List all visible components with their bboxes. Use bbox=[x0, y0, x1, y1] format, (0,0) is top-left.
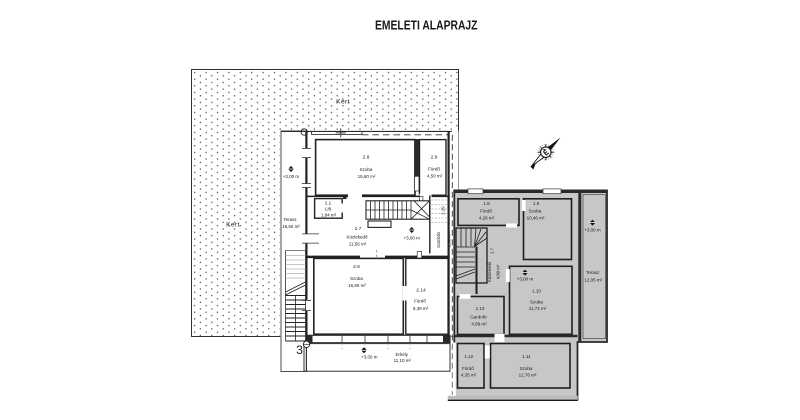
svg-text:Gardrób: Gardrób bbox=[470, 315, 487, 320]
svg-text:+3,00 m: +3,00 m bbox=[361, 355, 378, 360]
svg-text:2.1: 2.1 bbox=[325, 201, 332, 206]
svg-text:Szoba: Szoba bbox=[360, 167, 373, 172]
svg-text:1.8: 1.8 bbox=[483, 201, 490, 206]
svg-text:Fürdő: Fürdő bbox=[428, 166, 440, 171]
svg-text:2.9: 2.9 bbox=[431, 155, 438, 161]
svg-text:18,56 m²: 18,56 m² bbox=[282, 224, 300, 229]
svg-text:15,60 m²: 15,60 m² bbox=[358, 174, 376, 179]
svg-text:4,80 m²: 4,80 m² bbox=[496, 264, 501, 279]
svg-text:2.8: 2.8 bbox=[363, 155, 370, 161]
svg-text:2,30 m²: 2,30 m² bbox=[446, 232, 451, 247]
svg-text:16,90 m²: 16,90 m² bbox=[348, 283, 366, 288]
svg-text:1.7: 1.7 bbox=[490, 247, 495, 254]
svg-text:Fürdő: Fürdő bbox=[480, 208, 492, 213]
svg-text:4,26 m²: 4,26 m² bbox=[479, 215, 495, 220]
svg-text:Szoba: Szoba bbox=[350, 276, 363, 281]
svg-text:2,29: 2,29 bbox=[441, 206, 446, 215]
svg-text:10,46 m²: 10,46 m² bbox=[527, 215, 545, 220]
svg-text:3: 3 bbox=[296, 343, 303, 357]
svg-text:Szoba: Szoba bbox=[530, 299, 543, 304]
svg-text:+3,00 m: +3,00 m bbox=[584, 228, 601, 233]
svg-text:+3,00 m: +3,00 m bbox=[517, 277, 534, 282]
svg-text:Fürdő: Fürdő bbox=[414, 299, 426, 304]
svg-text:Terasz: Terasz bbox=[586, 270, 600, 275]
svg-text:Lift: Lift bbox=[325, 207, 332, 212]
svg-text:Fürdő: Fürdő bbox=[462, 366, 474, 371]
svg-text:Gardrób: Gardrób bbox=[436, 232, 441, 248]
svg-text:+3,00 m: +3,00 m bbox=[404, 236, 421, 241]
svg-text:12,76 m²: 12,76 m² bbox=[519, 372, 537, 377]
svg-text:EMELETI ALAPRAJZ: EMELETI ALAPRAJZ bbox=[375, 19, 478, 33]
svg-text:Terasz: Terasz bbox=[283, 217, 297, 222]
svg-text:Kert: Kert bbox=[336, 99, 350, 106]
svg-text:11,56 m²: 11,56 m² bbox=[349, 242, 367, 247]
svg-text:12,05 m²: 12,05 m² bbox=[584, 278, 602, 283]
svg-text:Közlekedő: Közlekedő bbox=[487, 261, 492, 282]
svg-text:4,50 m²: 4,50 m² bbox=[427, 174, 443, 179]
svg-text:1.13: 1.13 bbox=[476, 306, 485, 311]
svg-text:Szoba: Szoba bbox=[520, 366, 533, 371]
svg-text:1.9: 1.9 bbox=[533, 201, 540, 206]
svg-text:1.10: 1.10 bbox=[532, 289, 541, 294]
svg-text:9,39 m²: 9,39 m² bbox=[413, 306, 429, 311]
svg-text:1.12: 1.12 bbox=[464, 354, 473, 359]
svg-text:+3,00 m: +3,00 m bbox=[283, 174, 300, 179]
svg-text:Kert: Kert bbox=[226, 222, 240, 229]
svg-text:2.14: 2.14 bbox=[416, 287, 426, 293]
svg-text:4,88 m²: 4,88 m² bbox=[471, 322, 487, 327]
svg-text:1,84 m²: 1,84 m² bbox=[321, 212, 337, 217]
svg-text:11,10 m²: 11,10 m² bbox=[394, 358, 412, 363]
svg-text:Erkély: Erkély bbox=[396, 352, 409, 357]
svg-text:2.6: 2.6 bbox=[353, 264, 360, 270]
svg-text:Szoba: Szoba bbox=[529, 208, 542, 213]
svg-text:11,72 m²: 11,72 m² bbox=[529, 306, 547, 311]
svg-text:4,35 m²: 4,35 m² bbox=[461, 372, 477, 377]
svg-text:Közlekedő: Közlekedő bbox=[346, 235, 368, 240]
svg-text:2.7: 2.7 bbox=[355, 226, 362, 232]
svg-text:1.11: 1.11 bbox=[522, 354, 531, 359]
